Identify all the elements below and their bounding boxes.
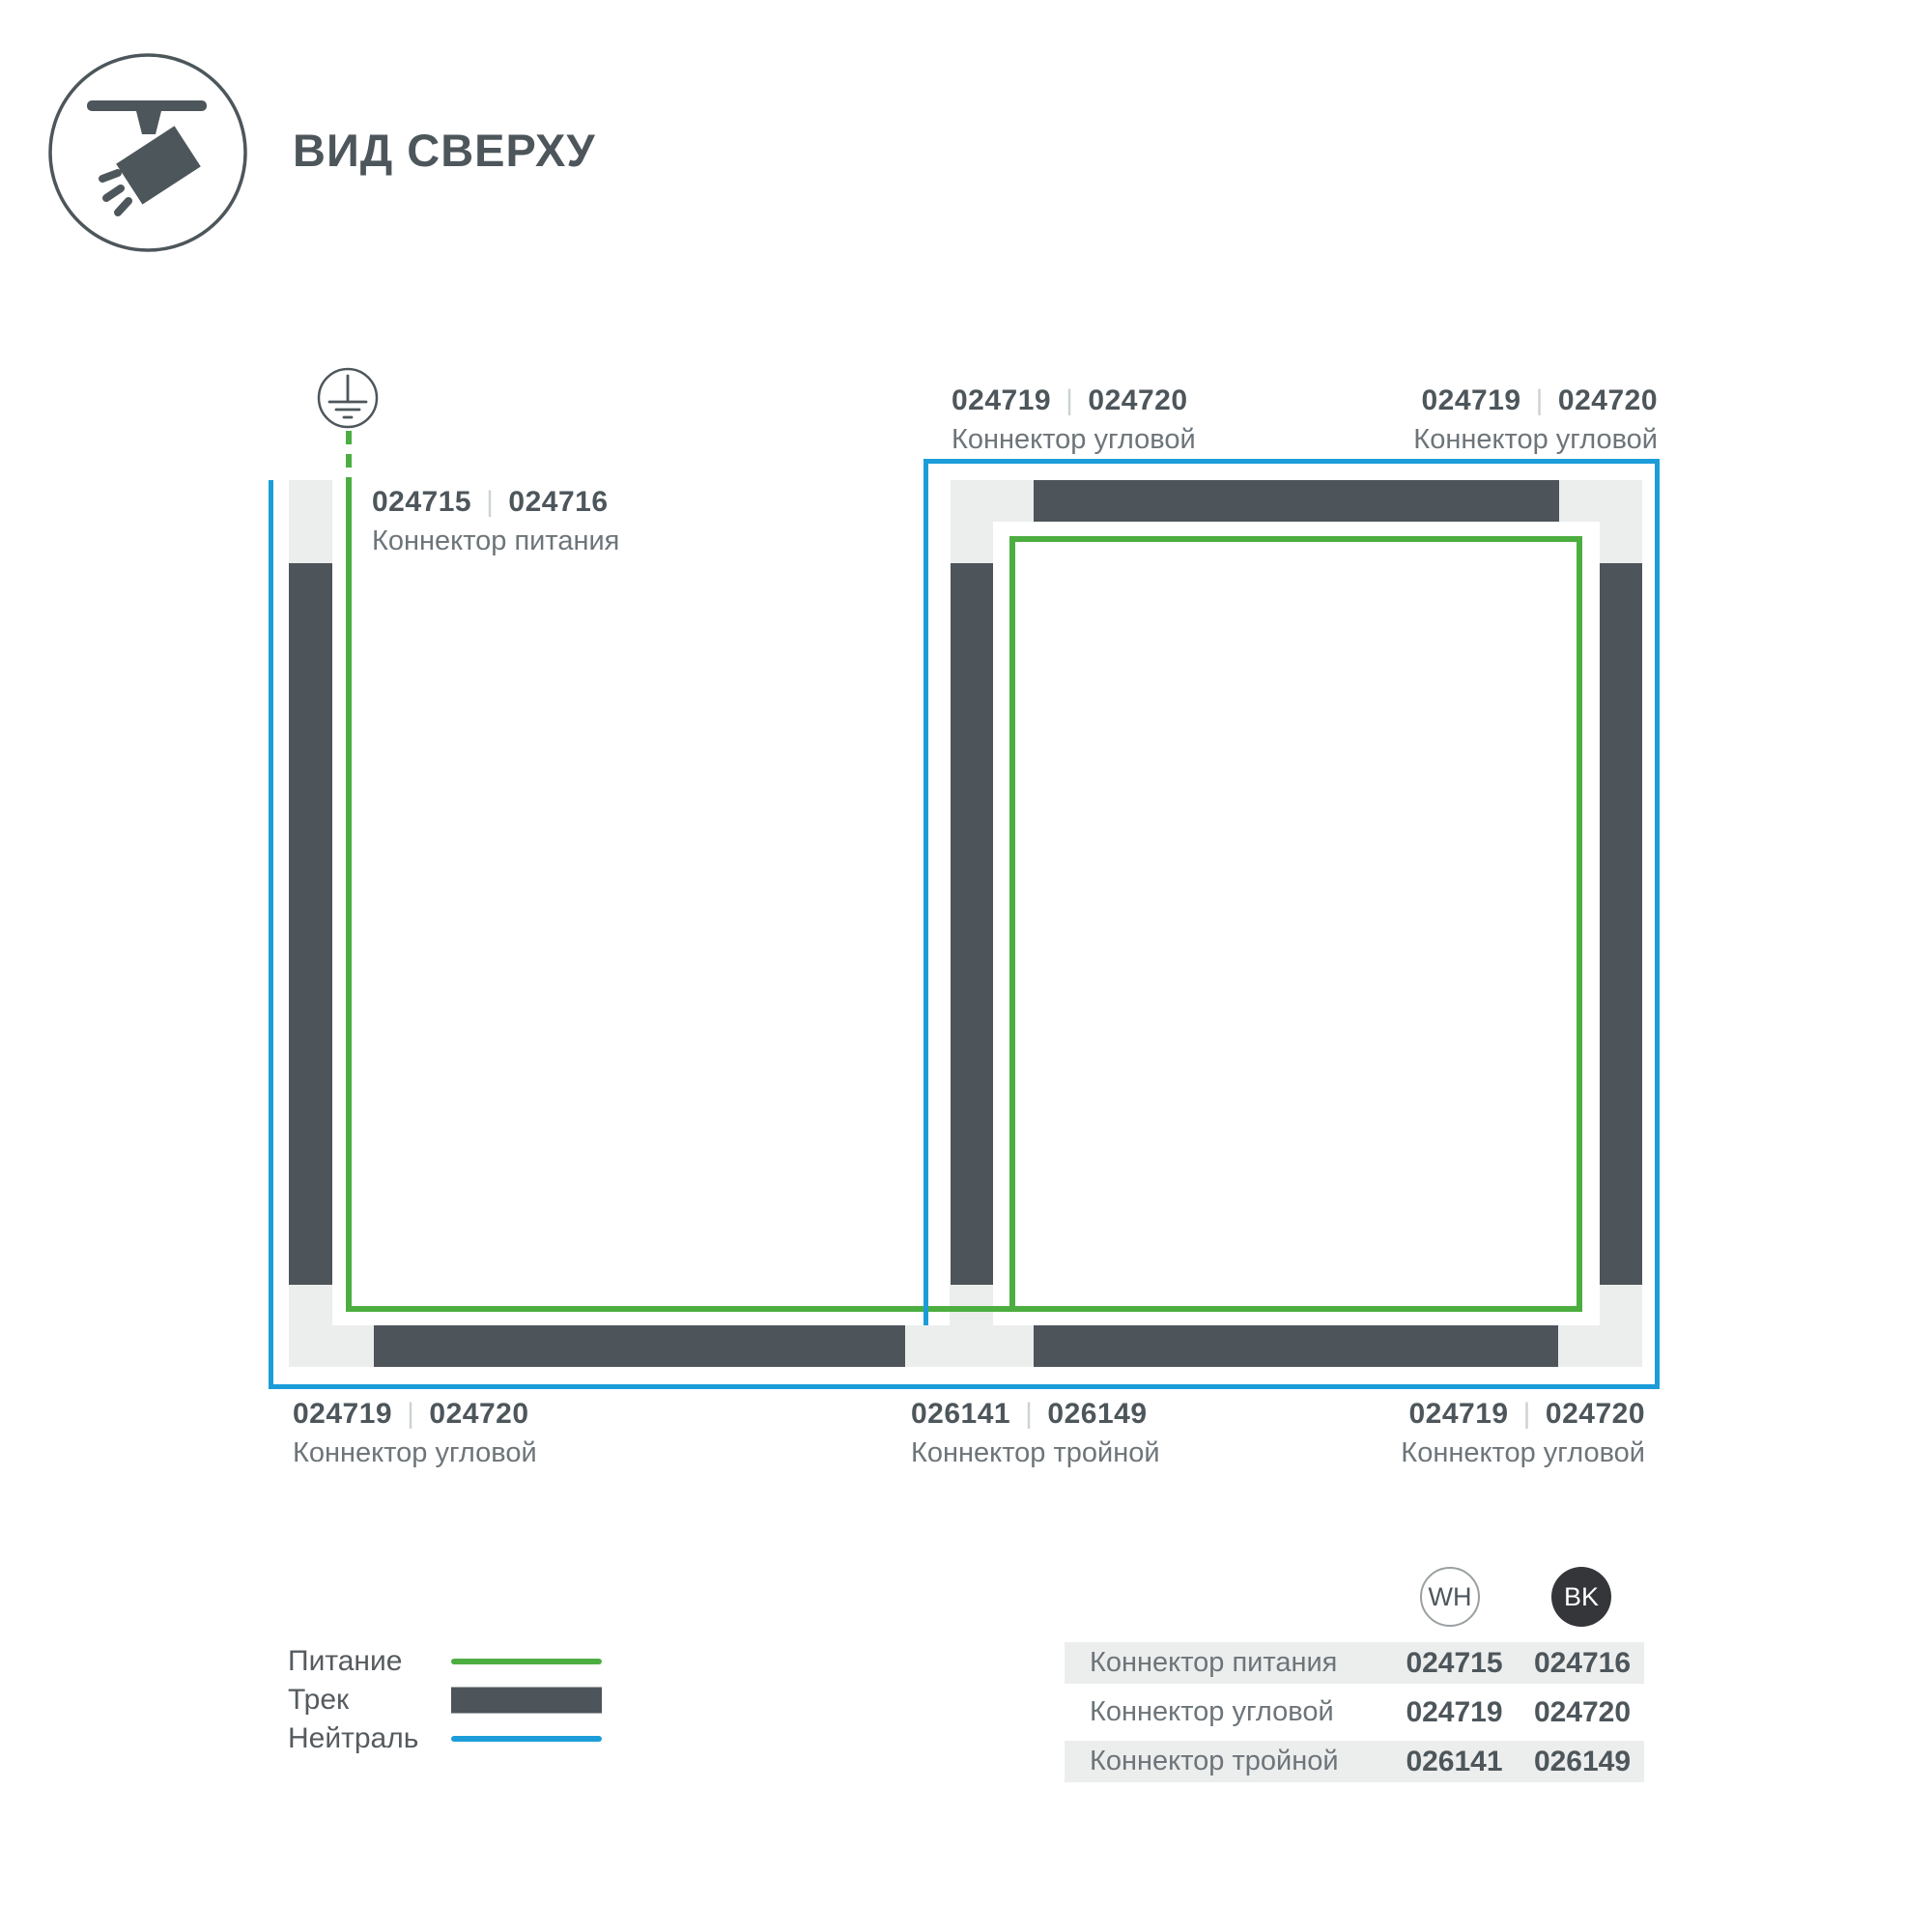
track-bar-right-top (1034, 480, 1559, 522)
track-bar-right-right-vertical (1600, 563, 1642, 1285)
page: ВИД СВЕРХУ 024715|024716 Конн (0, 0, 1932, 1932)
label-corner-connector-top-left: 024719|024720 Коннектор угловой (952, 384, 1196, 456)
ground-earth-icon (317, 367, 379, 429)
neutral-line-middle-vertical (923, 459, 928, 1325)
legend-item-power: Питание (288, 1642, 694, 1681)
row-code-bk: 026149 (1520, 1746, 1644, 1778)
neutral-line-bottom (269, 1384, 1660, 1389)
table-row: Коннектор питания 024715 024716 (1065, 1642, 1644, 1684)
row-code-bk: 024720 (1520, 1696, 1644, 1729)
part-codes: 024719|024720 (293, 1398, 537, 1431)
connector-name: Коннектор угловой (1401, 1437, 1645, 1469)
legend-label: Питание (288, 1645, 451, 1678)
connector-name: Коннектор угловой (1413, 424, 1658, 456)
track-bar-right-left-vertical (951, 563, 993, 1285)
neutral-line-swatch (451, 1719, 602, 1758)
label-triple-connector: 026141|026149 Коннектор тройной (911, 1398, 1160, 1469)
track-bar-bottom-right (1034, 1325, 1558, 1367)
table-row: Коннектор тройной 026141 026149 (1065, 1741, 1644, 1782)
row-code-wh: 024719 (1388, 1696, 1520, 1729)
row-code-wh: 026141 (1388, 1746, 1520, 1778)
label-corner-connector-top-right: 024719|024720 Коннектор угловой (1413, 384, 1658, 456)
legend-item-track: Трек (288, 1681, 694, 1719)
power-line-feed-vertical (346, 488, 352, 1312)
neutral-line-left-vertical (269, 480, 273, 1389)
track-bar-bottom-left (374, 1325, 905, 1367)
table-row: Коннектор угловой 024719 024720 (1065, 1691, 1644, 1733)
row-name: Коннектор питания (1065, 1647, 1388, 1679)
part-codes: 024719|024720 (1401, 1398, 1645, 1431)
legend-label: Нейтраль (288, 1722, 451, 1755)
connector-name: Коннектор тройной (911, 1437, 1160, 1469)
connector-name: Коннектор угловой (952, 424, 1196, 456)
white-color-badge: WH (1420, 1567, 1480, 1627)
track-bar-swatch (451, 1681, 602, 1719)
label-corner-connector-bottom-right: 024719|024720 Коннектор угловой (1401, 1398, 1645, 1469)
part-codes: 026141|026149 (911, 1398, 1160, 1431)
power-line-feed-dashed (346, 431, 352, 488)
connector-name: Коннектор угловой (293, 1437, 537, 1469)
row-name: Коннектор угловой (1065, 1696, 1388, 1728)
triple-connector-stem (950, 1285, 993, 1325)
parts-table: WH BK Коннектор питания 024715 024716 Ко… (1065, 1567, 1644, 1790)
part-codes: 024719|024720 (952, 384, 1196, 417)
track-bar-left-vertical (289, 563, 332, 1285)
connector-name: Коннектор питания (372, 526, 619, 557)
neutral-line-right-vertical (1655, 459, 1660, 1389)
legend-label: Трек (288, 1684, 451, 1717)
power-line-feed-horizontal (346, 1306, 1015, 1312)
black-color-badge: BK (1551, 1567, 1611, 1627)
power-line-loop (1009, 536, 1582, 1312)
part-codes: 024715|024716 (372, 486, 619, 519)
row-name: Коннектор тройной (1065, 1746, 1388, 1777)
label-corner-connector-bottom-left: 024719|024720 Коннектор угловой (293, 1398, 537, 1469)
part-codes: 024719|024720 (1413, 384, 1658, 417)
neutral-line-right-top (923, 459, 1660, 464)
track-spotlight-icon (46, 51, 249, 254)
label-power-connector: 024715|024716 Коннектор питания (372, 486, 619, 557)
row-code-wh: 024715 (1388, 1647, 1520, 1680)
color-column-headers: WH BK (1065, 1567, 1644, 1642)
legend-item-neutral: Нейтраль (288, 1719, 694, 1758)
page-title: ВИД СВЕРХУ (293, 124, 596, 177)
row-code-bk: 024716 (1520, 1647, 1644, 1680)
power-line-swatch (451, 1642, 602, 1681)
legend: Питание Трек Нейтраль (288, 1642, 694, 1758)
